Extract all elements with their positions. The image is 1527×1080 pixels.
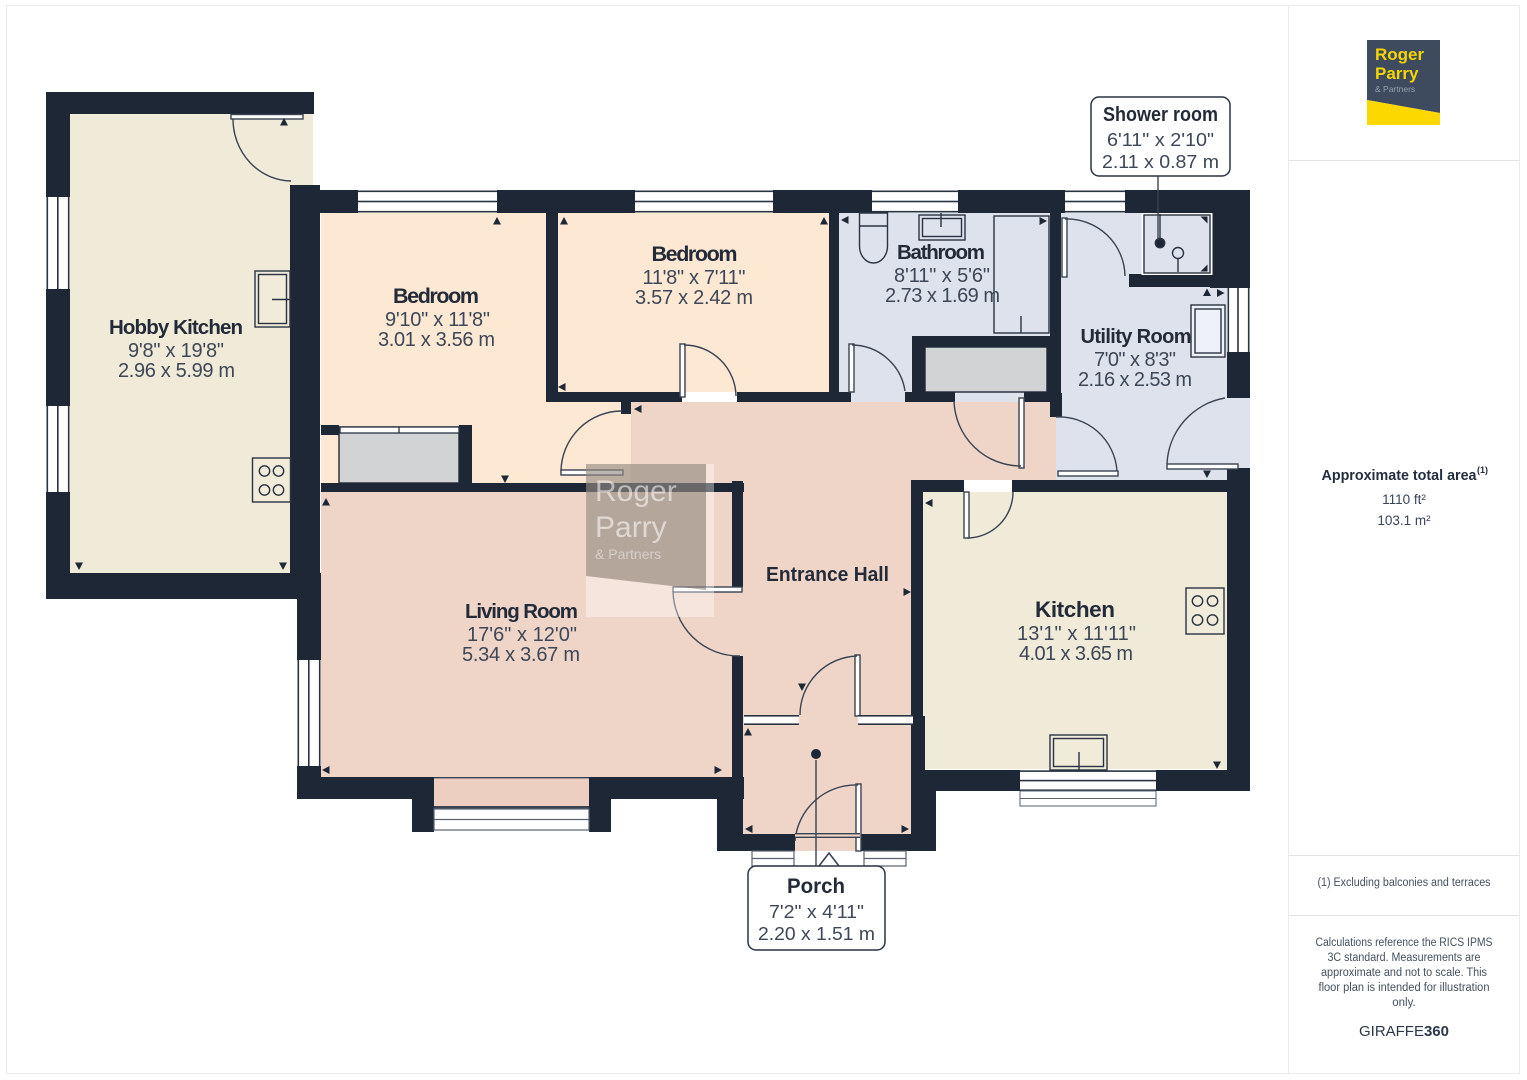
svg-text:Hobby Kitchen: Hobby Kitchen: [109, 316, 243, 339]
svg-text:floor plan is intended for ill: floor plan is intended for illustration: [1319, 982, 1490, 994]
svg-text:Bedroom: Bedroom: [393, 284, 479, 308]
svg-text:6'11" x 2'10": 6'11" x 2'10": [1107, 130, 1214, 150]
svg-text:Living Room: Living Room: [465, 600, 578, 623]
svg-text:Shower room: Shower room: [1103, 104, 1218, 126]
svg-text:3.57 x 2.42 m: 3.57 x 2.42 m: [635, 287, 753, 309]
svg-text:Bathroom: Bathroom: [897, 241, 985, 264]
svg-text:approximate and not to scale.: approximate and not to scale. This: [1321, 967, 1487, 979]
svg-text:Entrance Hall: Entrance Hall: [766, 563, 889, 586]
svg-text:Calculations reference the RIC: Calculations reference the RICS IPMS: [1316, 937, 1493, 949]
svg-text:7'2" x 4'11": 7'2" x 4'11": [769, 902, 864, 922]
svg-text:2.96 x 5.99 m: 2.96 x 5.99 m: [118, 360, 235, 382]
svg-text:GIRAFFE360: GIRAFFE360: [1359, 1024, 1449, 1040]
svg-text:& Partners: & Partners: [595, 546, 661, 562]
svg-text:17'6" x 12'0": 17'6" x 12'0": [467, 624, 577, 646]
svg-text:only.: only.: [1392, 997, 1415, 1009]
svg-text:3.01 x 3.56 m: 3.01 x 3.56 m: [378, 329, 495, 351]
svg-text:9'8" x 19'8": 9'8" x 19'8": [128, 340, 224, 362]
svg-text:(1) Excluding balconies and te: (1) Excluding balconies and terraces: [1318, 877, 1491, 889]
svg-text:5.34 x 3.67 m: 5.34 x 3.67 m: [462, 644, 580, 666]
svg-text:Porch: Porch: [787, 875, 845, 898]
svg-text:Parry: Parry: [1375, 64, 1419, 83]
svg-text:2.20 x 1.51 m: 2.20 x 1.51 m: [758, 924, 875, 944]
svg-text:1110 ft²: 1110 ft²: [1382, 492, 1426, 507]
svg-text:Approximate total area: Approximate total area: [1322, 467, 1478, 484]
svg-text:13'1" x 11'11": 13'1" x 11'11": [1017, 623, 1136, 645]
svg-text:& Partners: & Partners: [1375, 84, 1415, 94]
svg-text:103.1 m²: 103.1 m²: [1377, 513, 1431, 528]
svg-text:4.01 x 3.65 m: 4.01 x 3.65 m: [1019, 643, 1133, 665]
svg-text:7'0" x 8'3": 7'0" x 8'3": [1094, 349, 1176, 371]
svg-text:11'8" x 7'11": 11'8" x 7'11": [643, 267, 746, 289]
svg-text:Bedroom: Bedroom: [652, 242, 738, 266]
svg-text:2.11 x 0.87 m: 2.11 x 0.87 m: [1102, 152, 1219, 172]
svg-text:(1): (1): [1477, 465, 1488, 475]
svg-text:Roger: Roger: [1375, 45, 1425, 64]
svg-text:Roger: Roger: [595, 475, 677, 508]
svg-text:Parry: Parry: [595, 511, 667, 544]
svg-text:8'11" x 5'6": 8'11" x 5'6": [894, 265, 990, 287]
svg-text:Utility Room: Utility Room: [1081, 326, 1192, 348]
svg-text:9'10" x 11'8": 9'10" x 11'8": [385, 309, 490, 331]
svg-text:Kitchen: Kitchen: [1035, 597, 1115, 622]
svg-text:2.16 x 2.53 m: 2.16 x 2.53 m: [1078, 369, 1192, 391]
svg-text:3C standard. Measurements are: 3C standard. Measurements are: [1328, 952, 1481, 964]
svg-text:2.73 x 1.69 m: 2.73 x 1.69 m: [885, 285, 1000, 307]
